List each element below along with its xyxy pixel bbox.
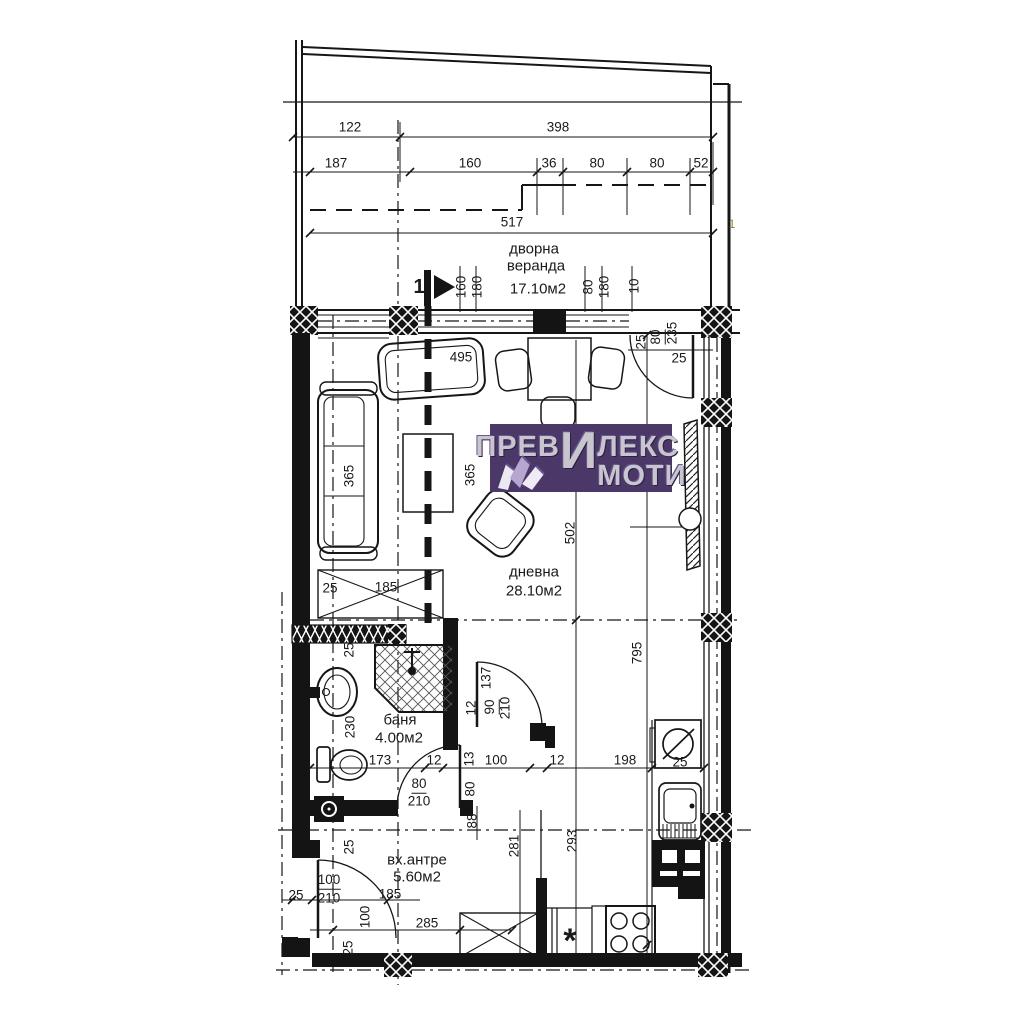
toilet — [317, 747, 367, 782]
stove — [592, 906, 655, 956]
entrance-door — [318, 860, 396, 938]
logo-text-part3: МОТИ — [597, 460, 686, 493]
floor-plan: ПРЕВИ ЛЕКС МОТИ 122398187160368080525171… — [0, 0, 1024, 1024]
logo-buildings-icon — [492, 444, 550, 491]
plan-linework — [0, 0, 1024, 1024]
kitchen-cabinet — [652, 840, 705, 899]
dining-chair — [587, 346, 625, 390]
shower — [375, 645, 453, 712]
bathroom-sink — [310, 668, 357, 716]
sofa — [318, 382, 378, 560]
terrace-step-line — [310, 185, 713, 210]
bathroom-door — [397, 745, 460, 808]
kitchen-sink — [659, 783, 701, 840]
wardrobe — [460, 913, 538, 957]
section-cut-line — [424, 270, 455, 628]
veranda-door — [630, 335, 693, 398]
living-room-door — [477, 662, 542, 727]
wardrobe — [318, 570, 443, 618]
dining-table — [528, 338, 591, 400]
armchair — [461, 484, 539, 562]
section-arrow-icon — [434, 275, 455, 299]
logo-big-letter: И — [560, 428, 598, 476]
floor-drain — [314, 796, 344, 822]
dimension-lines-top — [289, 122, 717, 350]
dining-chair — [494, 348, 532, 392]
